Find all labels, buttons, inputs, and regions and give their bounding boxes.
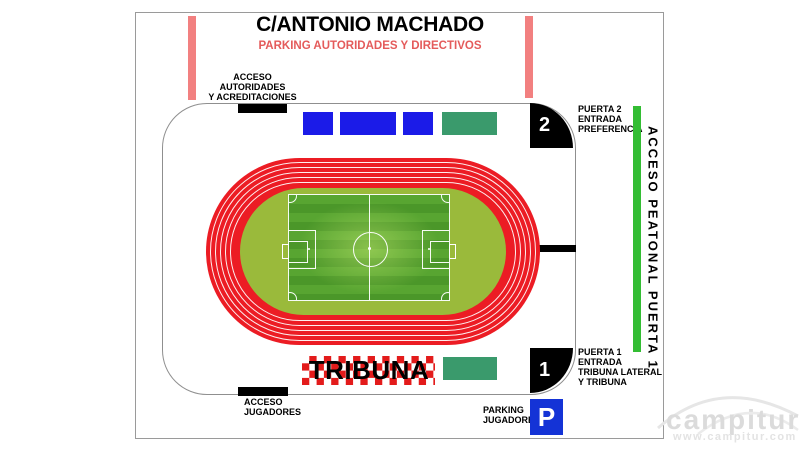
football-pitch — [288, 194, 450, 301]
stadium-map-canvas: C/ANTONIO MACHADO PARKING AUTORIDADES Y … — [0, 0, 800, 450]
goal-right — [449, 244, 456, 259]
parking-sign-letter: P — [538, 402, 555, 433]
seating-block-blue-2 — [340, 112, 396, 135]
seating-block-blue-1 — [303, 112, 333, 135]
seating-block-green-top — [442, 112, 497, 135]
corner-arc — [441, 194, 450, 203]
parking-authorities-label: PARKING AUTORIDADES Y DIRECTIVOS — [135, 40, 605, 52]
gate-1-number: 1 — [539, 359, 550, 382]
pedestrian-access-bar — [633, 106, 641, 352]
penalty-spot-right — [428, 248, 430, 250]
goal-area-right — [430, 241, 450, 263]
access-players-label: ACCESO JUGADORES — [244, 397, 314, 417]
athletics-track — [206, 158, 540, 345]
seating-block-green-bottom — [443, 357, 497, 380]
penalty-spot-left — [308, 248, 310, 250]
access-authorities-label: ACCESO AUTORIDADES Y ACREDITACIONES — [195, 72, 310, 102]
pedestrian-access-label: ACCESO PEATONAL PUERTA 1 — [642, 145, 664, 350]
parking-icon: P — [530, 399, 563, 435]
street-name-title: C/ANTONIO MACHADO — [135, 13, 605, 37]
entrance-authorities — [238, 104, 287, 113]
corner-arc — [288, 292, 297, 301]
entrance-players — [238, 387, 288, 396]
corner-arc — [441, 292, 450, 301]
gate-2-number: 2 — [539, 114, 550, 137]
seating-block-blue-3 — [403, 112, 433, 135]
goal-area-left — [288, 241, 308, 263]
corner-arc — [288, 194, 297, 203]
tribuna-label: TRIBUNA — [294, 355, 444, 385]
pitch-center-spot — [368, 247, 371, 250]
goal-left — [282, 244, 289, 259]
watermark-url-text: www.campitur.com — [673, 431, 797, 443]
